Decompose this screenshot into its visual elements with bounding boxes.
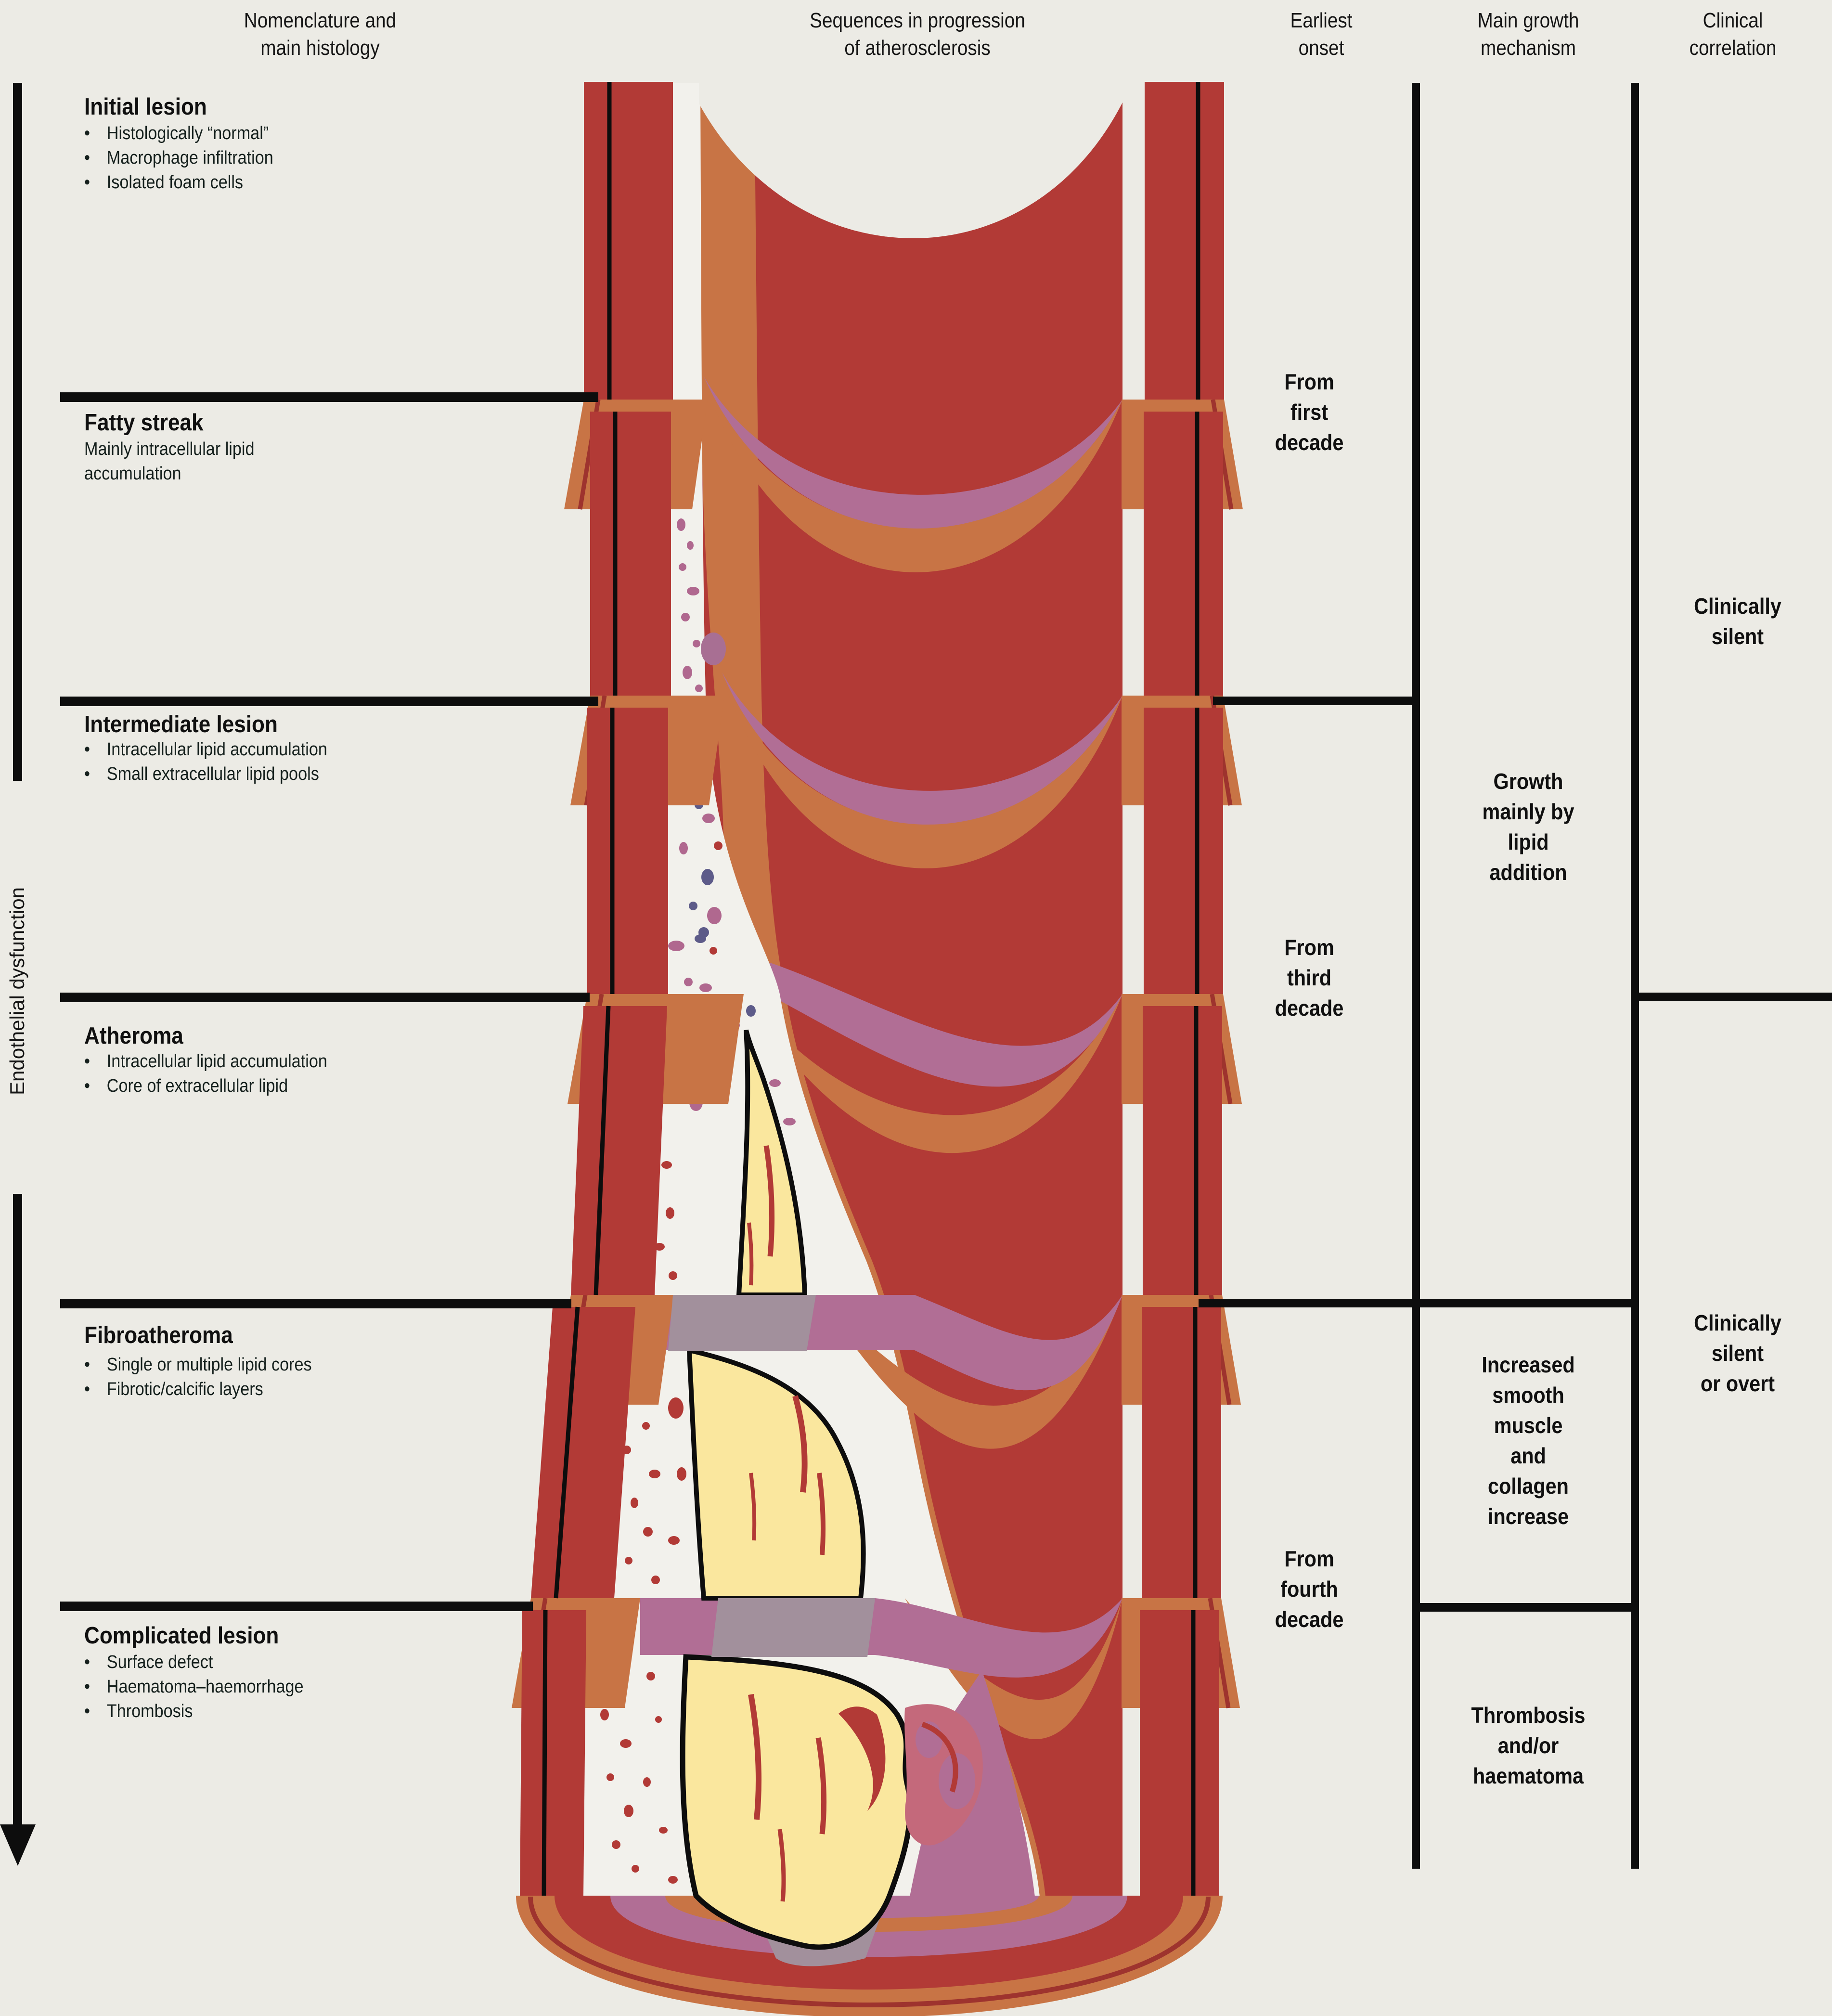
rule-complicated <box>60 1602 533 1611</box>
header-sequence: Sequences in progression of atherosclero… <box>790 7 1045 62</box>
clinical-silent-or-overt: Clinically silent or overt <box>1673 1308 1803 1399</box>
clinical-column-line <box>1631 83 1639 1869</box>
growth-smooth-muscle: Increased smooth muscle and collagen inc… <box>1463 1350 1593 1532</box>
bullet-item: •Intracellular lipid accumulation <box>84 1049 327 1074</box>
header-clinical: Clinical correlation <box>1669 7 1796 62</box>
atherosclerosis-diagram: { "title": "Sequences in progression of … <box>0 0 1832 2016</box>
onset-first-decade: From first decade <box>1244 367 1374 458</box>
bullet-dot: • <box>84 1377 107 1402</box>
growth-column-line <box>1412 83 1420 1869</box>
endothelial-dysfunction-label: Endothelial dysfunction <box>6 809 34 1174</box>
bullet-dot: • <box>84 146 107 170</box>
bullet-dot: • <box>84 121 107 146</box>
rule-atheroma <box>60 993 590 1002</box>
header-earliest-onset: Earliest onset <box>1258 7 1385 62</box>
onset-third-decade: From third decade <box>1244 932 1374 1023</box>
bullet-dot: • <box>84 1353 107 1377</box>
stage-bullets-fibroatheroma: •Single or multiple lipid cores•Fibrotic… <box>84 1353 312 1402</box>
bullet-dot: • <box>84 1049 107 1074</box>
bullet-item: •Histologically “normal” <box>84 121 273 146</box>
bullet-item: •Haematoma–haemorrhage <box>84 1675 304 1699</box>
bullet-dot: • <box>84 1074 107 1098</box>
rule-intermediate <box>60 697 598 706</box>
header-main-growth: Main growth mechanism <box>1465 7 1592 62</box>
stage-bullets-intermediate-lesion: •Intracellular lipid accumulation•Small … <box>84 737 327 787</box>
bullet-dot: • <box>84 1675 107 1699</box>
stage-bullets-initial-lesion: •Histologically “normal”•Macrophage infi… <box>84 121 273 195</box>
bullet-item: •Isolated foam cells <box>84 170 273 195</box>
stage-bullets-complicated-lesion: •Surface defect•Haematoma–haemorrhage•Th… <box>84 1650 304 1724</box>
stage-title-fibroatheroma: Fibroatheroma <box>84 1322 233 1349</box>
bullet-item: •Core of extracellular lipid <box>84 1074 327 1098</box>
header-histology: Nomenclature and main histology <box>193 7 447 62</box>
bullet-dot: • <box>84 170 107 195</box>
bullet-item: •Fibrotic/calcific layers <box>84 1377 312 1402</box>
stage-title-fatty-streak: Fatty streak <box>84 409 204 436</box>
clinical-silent: Clinically silent <box>1673 591 1803 652</box>
stage-title-intermediate-lesion: Intermediate lesion <box>84 711 278 738</box>
bullet-item: •Single or multiple lipid cores <box>84 1353 312 1377</box>
endothelial-arrow-shaft <box>13 1194 22 1825</box>
bullet-dot: • <box>84 1699 107 1724</box>
stage-title-atheroma: Atheroma <box>84 1022 183 1049</box>
connector-fibroatheroma <box>1199 1299 1639 1307</box>
divider-growth-boxes <box>1412 1603 1639 1612</box>
divider-clinical <box>1631 993 1832 1001</box>
endothelial-bar-top <box>13 83 22 781</box>
onset-fourth-decade: From fourth decade <box>1244 1544 1374 1635</box>
growth-lipid-addition: Growth mainly by lipid addition <box>1463 766 1593 888</box>
stage-title-initial-lesion: Initial lesion <box>84 93 207 120</box>
rule-fatty-streak <box>60 392 598 402</box>
bullet-item: •Small extracellular lipid pools <box>84 762 327 787</box>
bullet-dot: • <box>84 737 107 762</box>
bullet-item: •Surface defect <box>84 1650 304 1675</box>
growth-thrombosis: Thrombosis and/or haematoma <box>1463 1700 1593 1791</box>
bullet-dot: • <box>84 762 107 787</box>
bullet-item: •Intracellular lipid accumulation <box>84 737 327 762</box>
bullet-item: •Macrophage infiltration <box>84 146 273 170</box>
stage-bullets-atheroma: •Intracellular lipid accumulation•Core o… <box>84 1049 327 1098</box>
down-arrow-icon <box>0 1824 36 1866</box>
stage-desc-fatty-streak: Mainly intracellular lipid accumulation <box>84 437 255 486</box>
rule-fibroatheroma <box>60 1299 571 1308</box>
stage-title-complicated-lesion: Complicated lesion <box>84 1622 279 1649</box>
bullet-dot: • <box>84 1650 107 1675</box>
bullet-item: •Thrombosis <box>84 1699 304 1724</box>
connector-intermediate <box>1213 697 1420 705</box>
